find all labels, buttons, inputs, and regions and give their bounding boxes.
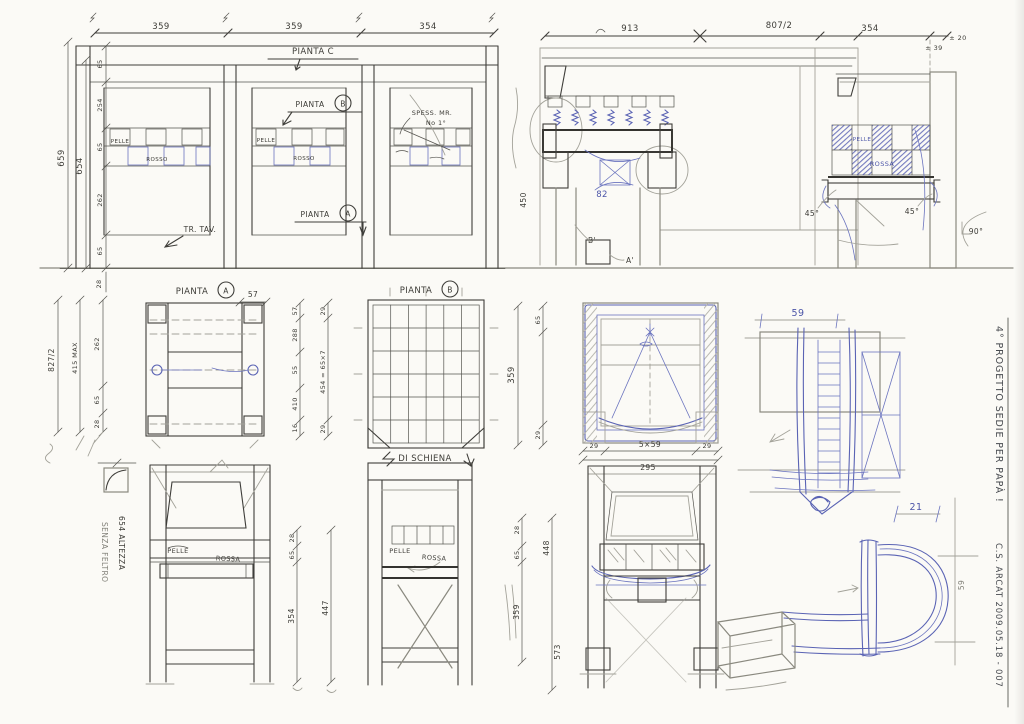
- label-rossa-rear: ROSSA: [422, 553, 447, 563]
- dim-lchain-2: 65: [96, 142, 104, 151]
- dim-pm20: ± 20: [949, 34, 966, 42]
- dim-c2-65: 65: [513, 550, 521, 559]
- dim-l28: 28: [95, 279, 103, 288]
- dim-d21: 21: [910, 502, 923, 513]
- blue-study-sketch: 59: [738, 308, 905, 514]
- label-pelle-side: PELLE: [853, 137, 872, 143]
- label-pelle-bay1: PELLE: [111, 139, 130, 145]
- ref-pianta-b-word: PIANTA: [295, 100, 324, 109]
- dim-a454: 454 = 65×7: [319, 350, 327, 394]
- ref-tr-tav-label: TR. TAV.: [183, 225, 217, 234]
- ref-pianta-a-letter: A: [345, 210, 351, 219]
- mark-82: 82: [596, 190, 608, 200]
- dim-c1-65: 65: [288, 550, 296, 559]
- dim-lchain-1: 254: [96, 98, 104, 112]
- dim-c2-28: 28: [513, 525, 521, 534]
- titleblock: 4° PROGETTO SEDIE PER PAPÀ ! C.S. ARCAT …: [993, 326, 1005, 688]
- dim-c1-447: 447: [321, 600, 330, 616]
- ref-pianta-a: PIANTA A: [295, 205, 366, 235]
- dim-c1-28: 28: [288, 533, 296, 542]
- dim-57: 57: [248, 290, 258, 299]
- sketch-sheet: 359 359 354 PELLE ROSSO PELLE ROSSO PIAN…: [0, 0, 1024, 724]
- bay2-back: PELLE ROSSO: [252, 88, 346, 235]
- chair-front-view: SENZA FELTRO 654 ALTEZZA PELLE ROSSA 28 …: [98, 459, 336, 693]
- dim-achain-0: 57: [291, 306, 299, 315]
- dim-827-2: 827/2: [47, 348, 56, 372]
- titleblock-project: 4° PROGETTO SEDIE PER PAPÀ !: [993, 326, 1005, 503]
- chair1-dim-chains: 28 65 354 447: [287, 526, 336, 693]
- plan-seat-blue: 29 5×59 29 295 359 65 29: [507, 302, 722, 472]
- dim-achain-2: 55: [291, 365, 299, 374]
- dim-achain-1: 288: [291, 328, 299, 342]
- dim-b65: 65: [534, 315, 542, 324]
- dim-913: 913: [621, 24, 638, 34]
- plan-b-letter: B: [447, 286, 453, 295]
- pencil-3d-frame: [718, 612, 795, 690]
- label-rossa-chair1: ROSSA: [216, 554, 241, 563]
- dim-m65: 65: [93, 395, 101, 404]
- side-checker-band: PELLE ROSSA: [832, 125, 930, 175]
- dim-c1-354: 354: [287, 608, 296, 624]
- dim-b29: 29: [534, 430, 542, 439]
- label-pelle-chair1: PELLE: [167, 547, 188, 555]
- note-spess-line1: SPESS. MR.: [412, 109, 453, 117]
- label-rossa-side: ROSSA: [870, 160, 895, 168]
- angle-90: 90°: [969, 227, 984, 236]
- dim-a29-top: 29: [319, 306, 327, 315]
- dim-p29-right: 29: [702, 442, 711, 450]
- ref-pianta-a-word: PIANTA: [300, 210, 329, 219]
- chair-rear-view: PELLE ROSSA 28 65 359 448 573: [368, 463, 562, 694]
- dim-654: 654: [75, 157, 85, 174]
- bay1-back: PELLE ROSSO: [104, 88, 210, 235]
- label-rosso-bay2: ROSSO: [293, 156, 315, 162]
- dim-bay3: 354: [419, 22, 436, 32]
- dim-450: 450: [519, 192, 528, 208]
- dim-c2-573: 573: [553, 644, 562, 660]
- blue-d-profile-sketch: 21 59: [718, 498, 978, 690]
- dim-lchain-3: 262: [96, 193, 104, 207]
- left-dim-chains: 659 654 65 254 65 262 65 28: [57, 38, 110, 292]
- plan-b-to-seat-chains: 359 65 29: [507, 302, 547, 449]
- label-pianta-c: PIANTA C: [292, 47, 334, 57]
- label-pelle-rear: PELLE: [389, 547, 410, 555]
- dim-achain-3: 410: [291, 397, 299, 411]
- dim-807-2: 807/2: [766, 21, 793, 31]
- sketch-canvas: 359 359 354 PELLE ROSSO PELLE ROSSO PIAN…: [0, 0, 1024, 724]
- dim-262: 262: [93, 337, 101, 351]
- dim-p29-left: 29: [589, 442, 598, 450]
- dim-bay1: 359: [152, 22, 169, 32]
- note-senza-feltro: SENZA FELTRO: [100, 522, 109, 582]
- plan-a-letter: A: [223, 287, 229, 296]
- plan-b: PIANTA B DI SCHIENA: [354, 281, 498, 466]
- dim-354: 354: [861, 24, 878, 34]
- mid-left-dim-chains: 827/2 415 MAX 262 65 28: [45, 296, 107, 463]
- dim-m28: 28: [93, 419, 101, 428]
- titleblock-author-date: C.S. ARCAT 2009.05.18 - 007: [993, 543, 1003, 688]
- mark-a-prime: A': [626, 256, 634, 265]
- dim-achain-4: 16: [291, 423, 299, 432]
- dim-b359: 359: [507, 366, 517, 383]
- ref-tr-tav: TR. TAV.: [165, 225, 216, 247]
- dim-659: 659: [57, 149, 67, 166]
- dim-c2-359: 359: [512, 604, 521, 620]
- plan-a: PIANTA A 57 57 288 55 410 16 29 454 = 65…: [146, 282, 332, 448]
- label-di-schiena: DI SCHIENA: [383, 452, 474, 466]
- dim-a29-bottom: 29: [319, 424, 327, 433]
- dim-s59: 59: [792, 308, 805, 319]
- dim-bay2: 359: [285, 22, 302, 32]
- section-long-rail: 913 807/2 82 B' A' 450: [512, 21, 862, 265]
- chair-upholstered-front: [580, 466, 724, 688]
- dim-lchain-4: 65: [96, 246, 104, 255]
- ref-pianta-b-letter: B: [340, 100, 346, 109]
- dim-c2-448: 448: [542, 540, 551, 556]
- angle-45-right: 45°: [905, 207, 920, 216]
- angle-45-left: 45°: [805, 209, 820, 218]
- note-654-altezza: 654 ALTEZZA: [117, 516, 126, 571]
- dim-415-max: 415 MAX: [71, 342, 79, 374]
- dim-5x59: 5×59: [639, 440, 661, 449]
- dim-pm39: ± 39: [925, 44, 942, 52]
- ref-pianta-b: PIANTA B: [283, 95, 362, 125]
- label-pelle-bay2: PELLE: [257, 138, 276, 144]
- dim-295: 295: [640, 463, 656, 472]
- note-spess-line2: No 1°: [426, 119, 446, 127]
- dim-lchain-0: 65: [96, 59, 104, 68]
- chair2-dim-chains: 28 65 359 448 573: [512, 514, 562, 694]
- dim-d59: 59: [957, 580, 966, 590]
- seat-section-springs: [543, 96, 676, 265]
- plan-a-word: PIANTA: [176, 287, 209, 297]
- plan-a-dim-chains: 57 288 55 410 16 29 454 = 65×7 29: [291, 299, 332, 440]
- plan-b-word: PIANTA: [400, 286, 433, 296]
- side-view-chair: 354 ± 39 ± 20 PELLE ROSSA 45° 45° 90°: [805, 24, 986, 268]
- label-rosso-bay1: ROSSO: [146, 157, 168, 163]
- elevation-three-bays: 359 359 354 PELLE ROSSO PELLE ROSSO PIAN…: [57, 13, 498, 292]
